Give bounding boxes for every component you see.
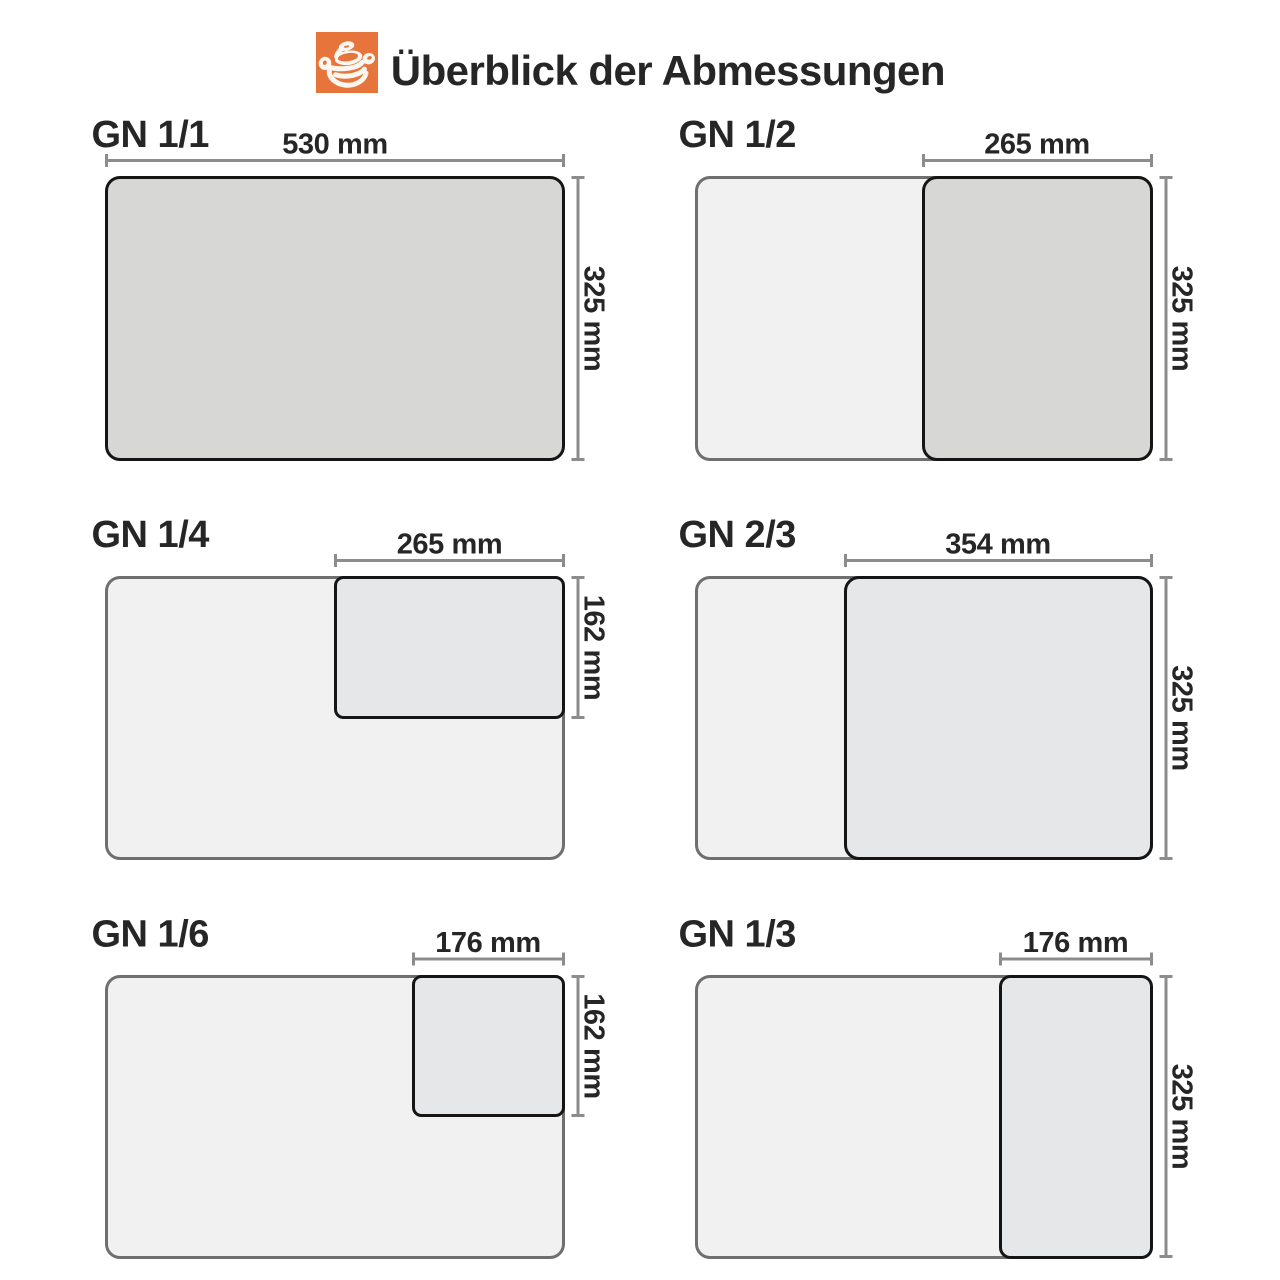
svg-text:176 mm: 176 mm: [1023, 927, 1129, 959]
svg-text:GN 1/3: GN 1/3: [679, 914, 796, 956]
svg-text:325 mm: 325 mm: [1166, 1064, 1198, 1170]
svg-text:GN 2/3: GN 2/3: [679, 514, 796, 556]
svg-text:265 mm: 265 mm: [984, 129, 1090, 161]
svg-text:GN 1/2: GN 1/2: [679, 114, 796, 156]
svg-text:Überblick der Abmessungen: Überblick der Abmessungen: [391, 47, 945, 94]
svg-text:530 mm: 530 mm: [282, 129, 388, 161]
svg-text:265 mm: 265 mm: [397, 529, 503, 561]
svg-text:325 mm: 325 mm: [1166, 665, 1198, 771]
svg-text:354 mm: 354 mm: [945, 529, 1051, 561]
svg-text:GN 1/4: GN 1/4: [92, 514, 210, 556]
svg-text:176 mm: 176 mm: [435, 927, 541, 959]
svg-text:325 mm: 325 mm: [578, 266, 610, 372]
svg-text:GN 1/6: GN 1/6: [92, 914, 209, 956]
svg-text:325 mm: 325 mm: [1166, 266, 1198, 372]
svg-text:162 mm: 162 mm: [578, 993, 610, 1099]
svg-text:GN 1/1: GN 1/1: [92, 114, 210, 156]
svg-text:162 mm: 162 mm: [578, 595, 610, 701]
